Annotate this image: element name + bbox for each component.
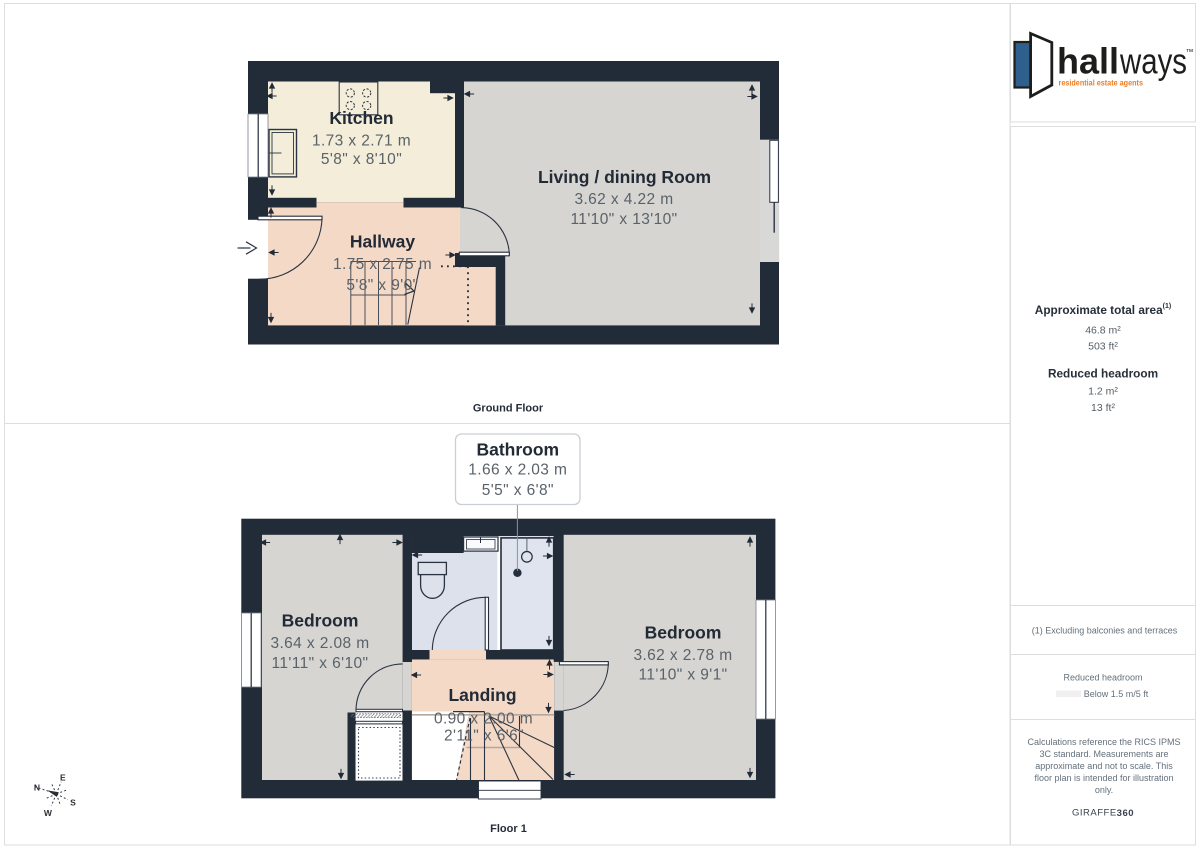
svg-text:residential estate agents: residential estate agents [1059,78,1144,88]
svg-text:1.75 x 2.75 m: 1.75 x 2.75 m [333,256,432,273]
svg-text:1.66 x 2.03 m: 1.66 x 2.03 m [468,462,567,479]
svg-text:hall: hall [1057,41,1119,82]
svg-text:Hallway: Hallway [350,232,415,252]
svg-text:503 ft²: 503 ft² [1088,341,1118,353]
svg-text:3C standard. Measurements are: 3C standard. Measurements are [1039,749,1168,759]
svg-text:5'5" x 6'8": 5'5" x 6'8" [482,482,554,499]
svg-text:GIRAFFE360: GIRAFFE360 [1072,808,1134,819]
svg-text:Bedroom: Bedroom [645,623,722,643]
svg-text:46.8 m²: 46.8 m² [1085,325,1121,337]
svg-text:Bathroom: Bathroom [476,440,559,460]
svg-text:0.90 x 2.00 m: 0.90 x 2.00 m [434,711,533,728]
svg-text:1.2 m²: 1.2 m² [1088,386,1118,398]
svg-text:approximate and not to scale.: approximate and not to scale. This [1035,761,1173,771]
svg-text:Approximate total area(1): Approximate total area(1) [1035,303,1171,318]
svg-text:Reduced headroom: Reduced headroom [1063,673,1142,683]
svg-text:N: N [34,783,40,793]
svg-text:Kitchen: Kitchen [329,108,393,128]
svg-text:W: W [44,808,53,818]
svg-text:Floor 1: Floor 1 [490,823,527,835]
svg-text:floor plan is intended for ill: floor plan is intended for illustration [1034,773,1173,783]
svg-text:only.: only. [1095,785,1113,795]
svg-text:1.73 x 2.71 m: 1.73 x 2.71 m [312,133,411,150]
svg-text:Landing: Landing [448,685,516,705]
svg-text:Below 1.5 m/5 ft: Below 1.5 m/5 ft [1084,689,1149,699]
svg-text:Calculations reference the RIC: Calculations reference the RICS IPMS [1027,737,1180,747]
svg-text:11'11" x 6'10": 11'11" x 6'10" [272,655,369,672]
svg-text:11'10" x 13'10": 11'10" x 13'10" [570,211,677,228]
svg-text:Reduced headroom: Reduced headroom [1048,367,1158,381]
svg-text:Bedroom: Bedroom [282,611,359,631]
svg-text:13 ft²: 13 ft² [1091,402,1115,414]
svg-text:E: E [60,773,66,783]
svg-text:11'10" x 9'1": 11'10" x 9'1" [638,667,727,684]
svg-text:ways: ways [1119,41,1187,82]
svg-text:3.64 x 2.08 m: 3.64 x 2.08 m [270,635,369,652]
svg-text:Ground Floor: Ground Floor [473,403,544,415]
svg-text:3.62 x 2.78 m: 3.62 x 2.78 m [633,647,732,664]
svg-text:3.62 x 4.22 m: 3.62 x 4.22 m [574,191,673,208]
svg-text:™: ™ [1186,48,1194,57]
svg-text:(1) Excluding balconies and te: (1) Excluding balconies and terraces [1032,626,1178,636]
svg-text:5'8" x 9'0": 5'8" x 9'0" [346,277,418,294]
svg-text:2'11" x 6'6": 2'11" x 6'6" [444,728,524,745]
svg-text:5'8" x 8'10": 5'8" x 8'10" [321,151,402,168]
svg-text:S: S [70,797,76,807]
svg-text:Living / dining Room: Living / dining Room [538,167,711,187]
